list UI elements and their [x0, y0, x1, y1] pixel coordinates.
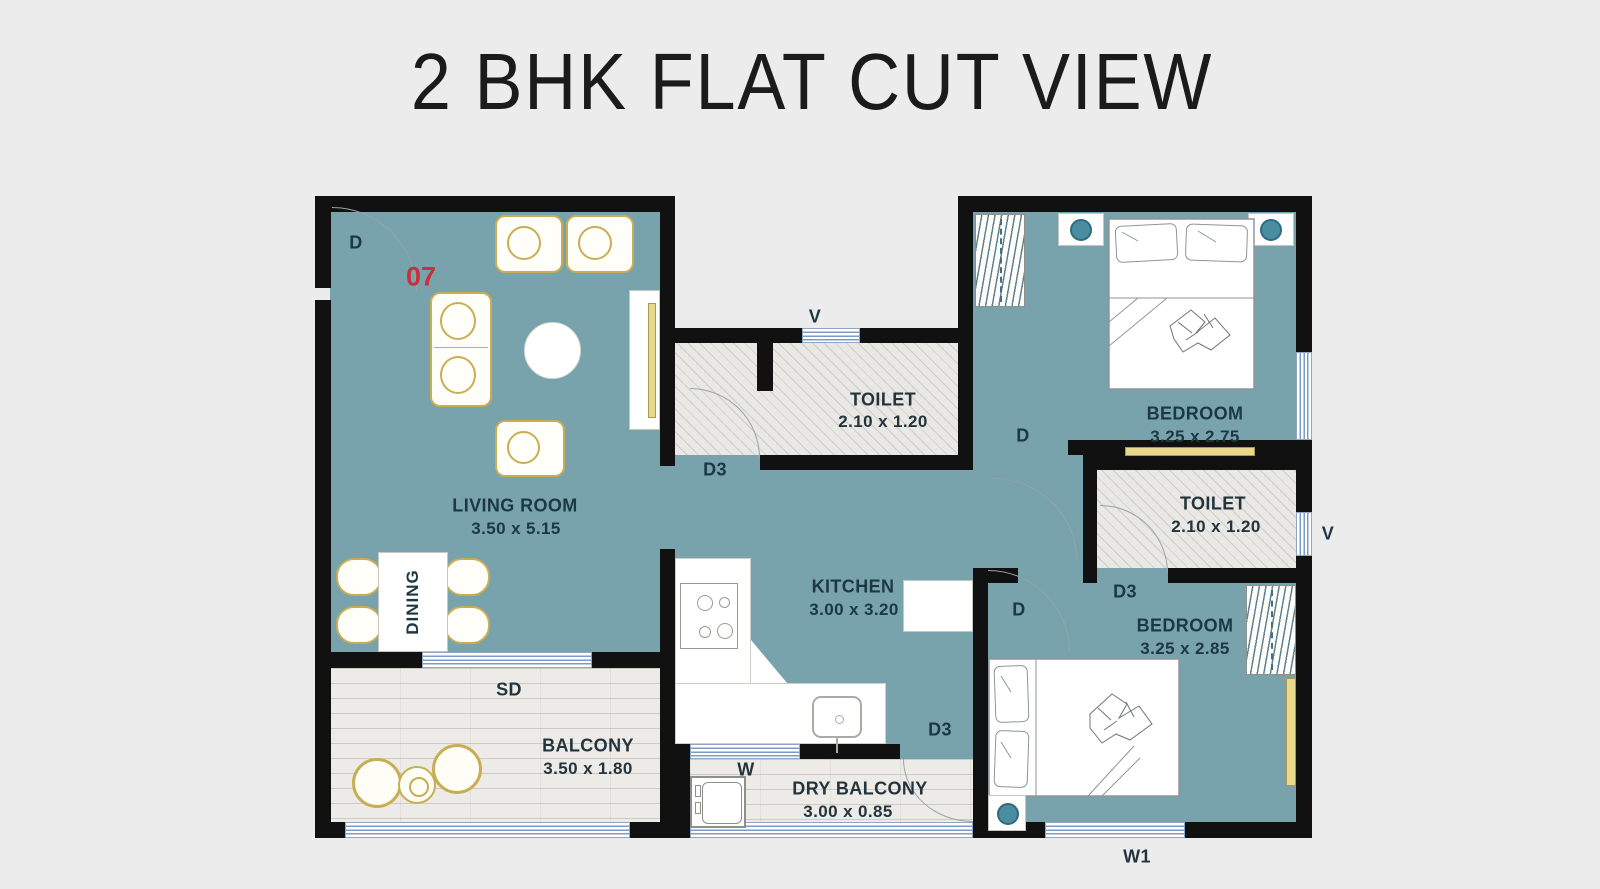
- living-room-name: LIVING ROOM: [452, 496, 577, 517]
- washing-machine-control: [695, 802, 701, 814]
- sofa-seat-1: [495, 215, 563, 273]
- dresser-bedroom-top: [1125, 447, 1255, 456]
- double-bed-top: [1108, 218, 1255, 390]
- floor-plan-page: 2 BHK FLAT CUT VIEW: [0, 0, 1600, 889]
- toilet-right-vent-label: V: [1322, 524, 1334, 545]
- sofa-cushion: [507, 431, 540, 464]
- wall-toilet-top-a: [675, 328, 802, 343]
- wall-toilet-top-bottom: [760, 455, 958, 470]
- kitchen-window-label: W: [737, 760, 754, 781]
- bedroom-top-door-label: D: [1016, 426, 1029, 447]
- kitchen-counter-corner: [751, 640, 787, 683]
- dry-balcony-door-opening: [900, 744, 973, 759]
- dining-chair: [336, 606, 382, 644]
- dry-balcony-dims: 3.00 x 0.85: [803, 802, 892, 822]
- wall-living-right-upper: [660, 196, 675, 466]
- kitchen-dims: 3.00 x 3.20: [809, 600, 898, 620]
- wall-right-upper: [1296, 196, 1312, 352]
- burner: [697, 595, 713, 611]
- bedroom-bottom-door-label: D: [1012, 600, 1025, 621]
- wardrobe-divider: [1000, 219, 1002, 303]
- bedroom-bottom-dims: 3.25 x 2.85: [1140, 639, 1229, 659]
- sink: [812, 696, 862, 738]
- sink-tap-line: [836, 738, 838, 753]
- main-door-label: D: [349, 233, 362, 254]
- bedroom-top-dims: 3.25 x 2.75: [1150, 427, 1239, 447]
- wall-balcony-corner-left: [315, 822, 345, 838]
- washing-machine-control: [695, 785, 701, 797]
- bedroom-bottom-window: [1045, 822, 1185, 838]
- toilet-top-name: TOILET: [850, 390, 916, 411]
- wall-toilet-right-bottom: [1168, 568, 1312, 583]
- toilet-top-door-label: D3: [703, 460, 727, 481]
- fridge: [903, 580, 973, 632]
- bedroom-top-name: BEDROOM: [1147, 404, 1244, 425]
- bedroom-bottom-window-label: W1: [1123, 847, 1151, 868]
- balcony-table: [398, 766, 436, 804]
- sofa-seat-2: [566, 215, 634, 273]
- balcony-dims: 3.50 x 1.80: [543, 759, 632, 779]
- wall-toilet-top-b: [860, 328, 958, 343]
- unit-number: 07: [406, 262, 436, 293]
- nightstand: [1058, 213, 1104, 246]
- bedroom-bottom-name: BEDROOM: [1137, 616, 1234, 637]
- toilet-right-dims: 2.10 x 1.20: [1171, 517, 1260, 537]
- wall-bedroom-top-left: [958, 196, 973, 470]
- stove: [680, 583, 738, 649]
- dining-label: DINING: [403, 569, 423, 635]
- wardrobe-divider: [1271, 590, 1273, 671]
- sliding-door-window: [422, 652, 592, 668]
- toilet-top-dims: 2.10 x 1.20: [838, 412, 927, 432]
- wall-bedroom-bottom-b: [1185, 822, 1312, 838]
- wall-left-upper: [315, 196, 331, 288]
- lamp: [1070, 219, 1092, 241]
- sofa-cushion: [507, 226, 541, 260]
- bedroom-top-side-window: [1296, 352, 1312, 440]
- wall-right-lower: [1296, 556, 1312, 838]
- wall-top-left: [315, 196, 675, 212]
- dining-chair: [336, 558, 382, 596]
- sofa-divider: [434, 347, 488, 348]
- tv-screen: [648, 303, 656, 418]
- wall-toilet-top-stub: [757, 343, 773, 391]
- dry-balcony-name: DRY BALCONY: [792, 779, 927, 800]
- burner: [717, 623, 733, 639]
- toilet-top-vent-window: [802, 328, 860, 343]
- sofa-cushion: [578, 226, 612, 260]
- dry-balcony-door-label: D3: [928, 720, 952, 741]
- double-bed-bottom: [988, 658, 1180, 797]
- dining-chair: [444, 558, 490, 596]
- kitchen-name: KITCHEN: [812, 577, 895, 598]
- lamp: [1260, 219, 1282, 241]
- nightstand: [988, 795, 1026, 831]
- wardrobe-bedroom-top: [975, 214, 1025, 307]
- toilet-right-vent-window: [1296, 512, 1312, 556]
- washing-machine-door: [702, 782, 742, 824]
- living-room-dims: 3.50 x 5.15: [471, 519, 560, 539]
- wall-toilet-right-left: [1083, 455, 1097, 583]
- sliding-door-label: SD: [496, 680, 522, 701]
- sofa-double: [430, 292, 492, 407]
- balcony-chair: [352, 758, 402, 808]
- burner: [699, 626, 711, 638]
- page-title: 2 BHK FLAT CUT VIEW: [411, 36, 1213, 128]
- balcony-railing: [345, 822, 630, 838]
- sofa-cushion: [440, 302, 476, 340]
- coffee-table: [524, 322, 581, 379]
- balcony-table-ring: [409, 777, 429, 797]
- balcony-name: BALCONY: [542, 736, 634, 757]
- washing-machine: [690, 776, 746, 828]
- toilet-top-vent-label: V: [809, 307, 821, 328]
- lamp: [997, 803, 1019, 825]
- dresser-bedroom-bottom: [1286, 678, 1296, 786]
- kitchen-window: [690, 744, 800, 759]
- sofa-cushion: [440, 356, 476, 394]
- burner: [719, 597, 730, 608]
- wall-top-right: [958, 196, 1312, 212]
- toilet-right-door-label: D3: [1113, 582, 1137, 603]
- wardrobe-bedroom-bottom: [1246, 585, 1296, 675]
- balcony-chair: [432, 744, 482, 794]
- wall-kitchen-bedroom: [973, 568, 988, 838]
- dining-chair: [444, 606, 490, 644]
- wall-living-bottom-left: [330, 652, 422, 668]
- sink-drain: [835, 715, 844, 724]
- sofa-seat-3: [495, 420, 565, 477]
- toilet-right-name: TOILET: [1180, 494, 1246, 515]
- wall-kitchen-bottom: [800, 744, 900, 759]
- wall-living-right-lower: [660, 549, 675, 652]
- wall-toilet-right-top: [1083, 455, 1312, 470]
- wall-left-lower: [315, 300, 331, 838]
